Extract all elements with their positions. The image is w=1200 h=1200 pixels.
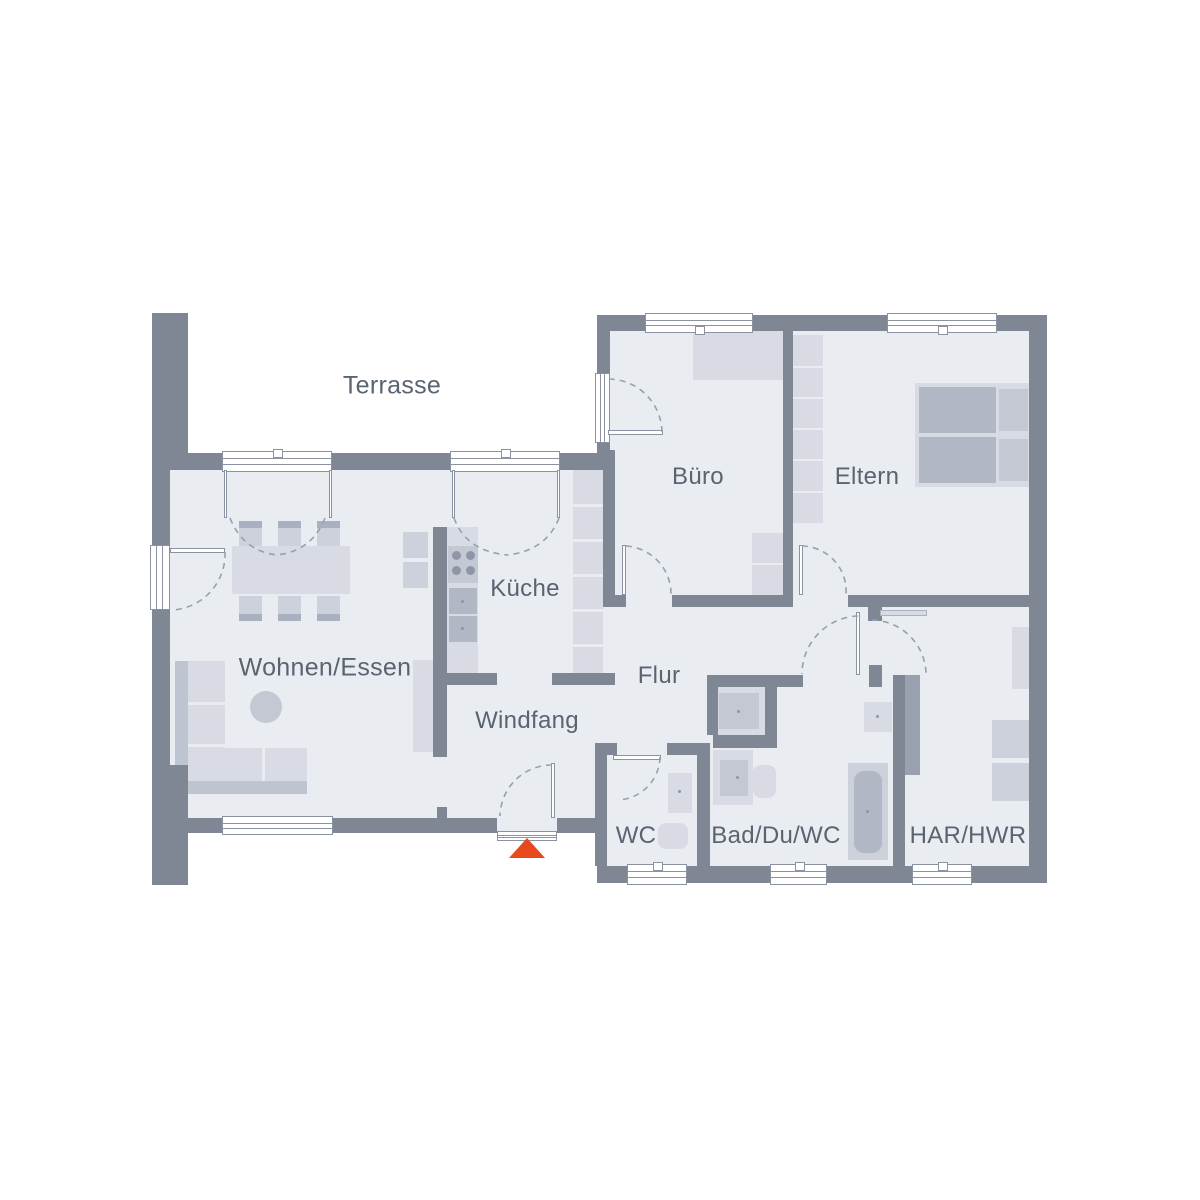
pillow — [999, 389, 1028, 431]
room-label-wohnen-essen: Wohnen/Essen — [239, 654, 412, 683]
chair-back — [278, 521, 301, 528]
burner-icon — [466, 551, 475, 560]
cabinet-seam — [793, 491, 823, 493]
wall-segment — [170, 453, 222, 470]
chair-back — [317, 521, 340, 528]
wall-segment — [595, 755, 607, 866]
wall-segment — [697, 743, 710, 866]
bath-toilet — [753, 765, 776, 798]
window-glazing-line — [771, 877, 826, 878]
cabinet-seam — [793, 459, 823, 461]
window-glazing-line — [223, 828, 332, 829]
bath-washbasin — [720, 760, 748, 796]
window — [222, 816, 333, 835]
wall-segment — [433, 527, 447, 757]
room-label-windfang: Windfang — [475, 707, 579, 735]
door-leaf — [551, 763, 555, 818]
wall-segment — [827, 866, 912, 883]
wall-segment — [713, 735, 777, 748]
wall-segment — [707, 675, 803, 687]
fixture-dot — [737, 710, 740, 713]
fixture-dot — [866, 810, 869, 813]
wall-segment — [170, 818, 222, 833]
window — [150, 545, 170, 610]
wall-segment — [597, 443, 610, 455]
floor-plan: Terrasse Wohnen/Essen Küche Windfang Flu… — [0, 0, 1200, 1200]
wall-segment — [765, 687, 777, 735]
sofa-seam — [188, 702, 225, 705]
window-center-tick — [501, 449, 511, 458]
window-glazing-line — [628, 877, 686, 878]
window — [887, 313, 997, 333]
room-label-bad: Bad/Du/WC — [711, 822, 840, 850]
window-glazing-line — [223, 458, 331, 459]
window-center-tick — [938, 862, 948, 871]
wall-segment — [437, 807, 447, 818]
door-leaf — [799, 545, 803, 595]
wall-segment — [893, 675, 905, 866]
door-leaf — [856, 612, 860, 675]
window-center-tick — [795, 862, 805, 871]
fixture-dot — [876, 715, 879, 718]
window — [645, 313, 753, 333]
cabinet-seam — [573, 609, 603, 612]
room-label-har-hwr: HAR/HWR — [910, 822, 1027, 850]
wall-segment — [783, 331, 793, 607]
burner-icon — [452, 551, 461, 560]
door-leaf — [224, 470, 227, 518]
chair-back — [317, 614, 340, 621]
window — [450, 451, 560, 472]
cabinet — [403, 532, 428, 558]
cabinet-seam — [793, 366, 823, 368]
wall-segment — [595, 743, 617, 755]
side-table — [250, 691, 282, 723]
wc-washbasin — [668, 773, 692, 813]
cabinet-seam — [573, 644, 603, 647]
door-leaf — [613, 755, 661, 760]
window — [222, 451, 332, 472]
door-leaf — [170, 548, 225, 553]
chair-back — [278, 614, 301, 621]
door-leaf — [622, 545, 626, 595]
window-center-tick — [273, 449, 283, 458]
window-center-tick — [695, 326, 705, 335]
dining-table — [232, 546, 350, 594]
door-leaf — [329, 470, 332, 518]
sofa-backrest — [175, 781, 307, 794]
wall-segment — [332, 453, 450, 470]
room-label-kueche: Küche — [490, 575, 560, 603]
wall-segment — [152, 453, 170, 545]
window-glazing-line — [771, 871, 826, 872]
wall-segment — [753, 315, 887, 331]
window-glazing-line — [604, 374, 605, 442]
fixture-dot — [461, 600, 464, 603]
wall-segment — [972, 866, 1047, 883]
window-glazing-line — [646, 320, 752, 321]
sideboard — [413, 660, 435, 752]
window-glazing-line — [888, 320, 996, 321]
window-glazing-line — [498, 837, 556, 838]
door-leaf — [452, 470, 455, 518]
door-leaf — [557, 470, 560, 518]
burner-icon — [452, 566, 461, 575]
window-glazing-line — [451, 464, 559, 465]
burner-icon — [466, 566, 475, 575]
window-glazing-line — [223, 823, 332, 824]
utility-cabinet — [1012, 627, 1029, 689]
cabinet-seam — [793, 428, 823, 430]
room-label-flur: Flur — [638, 662, 681, 690]
room-label-eltern: Eltern — [835, 463, 900, 491]
window-glazing-line — [498, 835, 556, 836]
cabinet-seam — [793, 397, 823, 399]
wall-segment — [687, 866, 770, 883]
wall-segment — [869, 665, 882, 687]
window-glazing-line — [156, 546, 157, 609]
window-glazing-line — [223, 464, 331, 465]
washing-machine — [992, 720, 1029, 758]
room-label-buero: Büro — [672, 463, 724, 491]
window-glazing-line — [913, 871, 971, 872]
cabinet-seam — [573, 504, 603, 507]
room-label-wc: WC — [616, 822, 657, 850]
desk — [693, 331, 783, 380]
window-glazing-line — [628, 871, 686, 872]
wall-segment — [152, 313, 188, 453]
door-leaf — [608, 430, 663, 435]
wall-segment — [672, 595, 783, 607]
door-leaf-open — [880, 610, 927, 616]
fixture-dot — [678, 790, 681, 793]
wall-segment — [597, 315, 645, 331]
cabinet-seam — [573, 574, 603, 577]
wall-segment — [603, 450, 615, 595]
window-glazing-line — [913, 877, 971, 878]
pillow — [999, 439, 1028, 481]
wc-toilet — [658, 823, 688, 849]
wall-segment — [1029, 315, 1047, 883]
wall-segment — [848, 595, 1029, 607]
mattress — [919, 437, 996, 483]
dryer — [992, 763, 1029, 801]
window — [912, 864, 972, 885]
wall-segment — [557, 818, 597, 833]
window — [770, 864, 827, 885]
window-center-tick — [653, 862, 663, 871]
cabinet-seam — [573, 539, 603, 542]
wall-segment — [433, 673, 497, 685]
wall-segment — [603, 595, 626, 607]
fixture-dot — [461, 627, 464, 630]
window-glazing-line — [162, 546, 163, 609]
wall-segment — [597, 866, 627, 883]
entrance-marker-icon — [509, 838, 545, 858]
installation-shaft — [905, 675, 920, 775]
window — [497, 831, 557, 841]
cabinet-seam — [752, 563, 783, 565]
sofa-seam — [188, 744, 225, 747]
chair-back — [239, 614, 262, 621]
room-label-terrasse: Terrasse — [343, 372, 441, 401]
window-center-tick — [938, 326, 948, 335]
wall-segment — [333, 818, 497, 833]
window — [627, 864, 687, 885]
sofa-seam — [262, 748, 265, 781]
cabinet — [403, 562, 428, 588]
wall-segment — [707, 687, 718, 735]
wall-segment — [152, 610, 170, 765]
window-glazing-line — [600, 374, 601, 442]
chair-back — [239, 521, 262, 528]
mattress — [919, 387, 996, 433]
wall-segment — [552, 673, 615, 685]
fixture-dot — [736, 776, 739, 779]
window-glazing-line — [451, 458, 559, 459]
